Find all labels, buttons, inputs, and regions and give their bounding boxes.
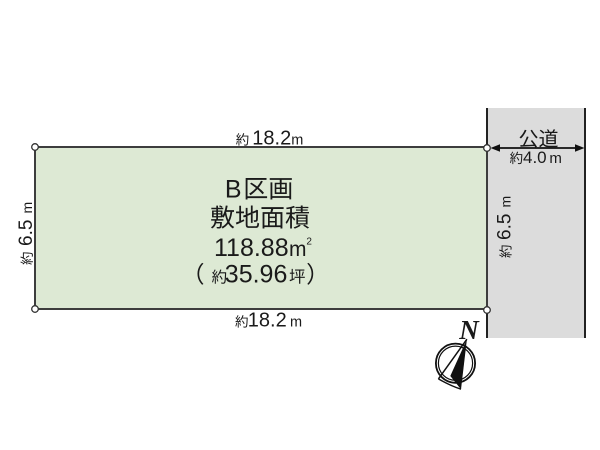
- svg-text:18.2: 18.2: [248, 310, 287, 332]
- svg-text:m: m: [290, 315, 302, 331]
- svg-text:18.2: 18.2: [252, 128, 291, 150]
- svg-text:N: N: [458, 315, 480, 345]
- svg-text:m: m: [289, 238, 307, 261]
- svg-text:m: m: [19, 202, 35, 214]
- svg-text:6.5: 6.5: [16, 220, 37, 246]
- svg-text:6.5: 6.5: [495, 214, 516, 240]
- svg-text:m: m: [498, 196, 514, 208]
- svg-text:2: 2: [306, 237, 312, 248]
- svg-text:m: m: [291, 133, 303, 149]
- svg-text:B: B: [225, 176, 242, 204]
- svg-text:m: m: [549, 150, 562, 167]
- svg-text:4.0: 4.0: [523, 148, 547, 167]
- svg-text:35.96: 35.96: [225, 261, 288, 289]
- svg-text:118.88: 118.88: [214, 234, 289, 262]
